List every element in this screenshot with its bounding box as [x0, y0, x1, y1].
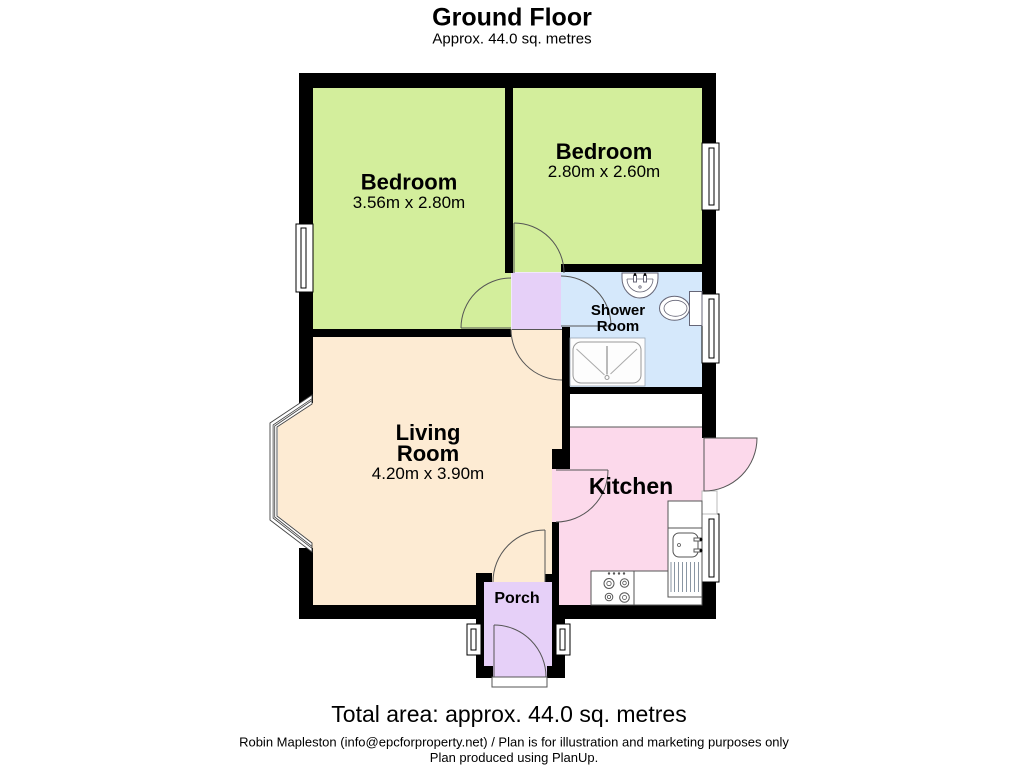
svg-text:Shower: Shower [591, 302, 645, 319]
svg-text:Robin Mapleston (info@epcforpr: Robin Mapleston (info@epcforproperty.net… [239, 735, 789, 750]
svg-text:Plan produced using PlanUp.: Plan produced using PlanUp. [430, 750, 598, 765]
svg-text:Bedroom: Bedroom [361, 170, 458, 195]
svg-text:Kitchen: Kitchen [589, 473, 673, 499]
svg-text:3.56m x 2.80m: 3.56m x 2.80m [353, 193, 465, 212]
svg-text:Room: Room [597, 318, 640, 335]
svg-text:Bedroom: Bedroom [556, 139, 653, 164]
svg-text:Total area: approx. 44.0 sq. m: Total area: approx. 44.0 sq. metres [331, 701, 686, 727]
svg-text:Room: Room [397, 441, 459, 466]
svg-text:Porch: Porch [494, 590, 539, 607]
svg-text:Approx. 44.0 sq. metres: Approx. 44.0 sq. metres [432, 31, 591, 48]
svg-text:Ground Floor: Ground Floor [432, 4, 592, 32]
svg-text:4.20m x 3.90m: 4.20m x 3.90m [372, 464, 484, 483]
svg-text:2.80m x 2.60m: 2.80m x 2.60m [548, 162, 660, 181]
